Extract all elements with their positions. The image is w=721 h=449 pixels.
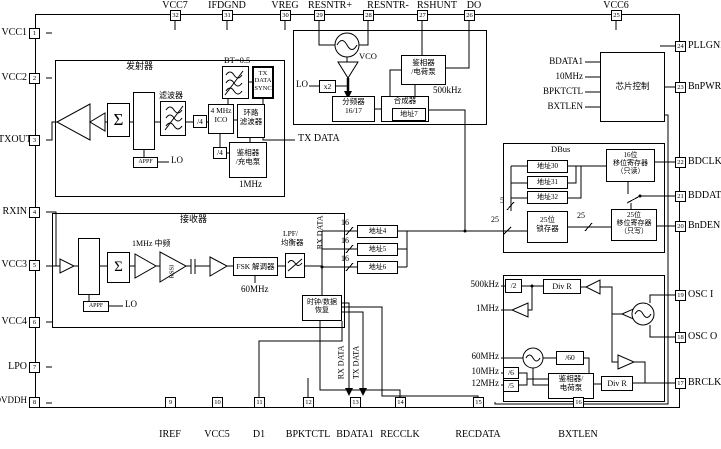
- pin-vcc6[interactable]: 25: [611, 10, 622, 21]
- pin-num: 31: [224, 12, 231, 19]
- pin-vcc5[interactable]: 10: [212, 397, 223, 408]
- pin-num: 18: [677, 334, 684, 341]
- pin-resntr-m[interactable]: 28: [363, 10, 374, 21]
- pin-osco[interactable]: 18: [675, 332, 686, 343]
- pin-num: 20: [677, 223, 684, 230]
- pin-do[interactable]: 26: [464, 10, 475, 21]
- pin-vcc4-label: VCC4: [1, 316, 27, 327]
- pin-num: 26: [466, 12, 473, 19]
- pin-num: 29: [316, 12, 323, 19]
- pin-num: 9: [169, 399, 172, 406]
- pin-vcc7[interactable]: 32: [170, 10, 181, 21]
- pin-num: 27: [419, 12, 426, 19]
- tx-data-sync-block: TXDATASYNC: [252, 66, 274, 99]
- lpf-label2: 均衡器: [281, 239, 304, 247]
- addr5-block: 地址5: [357, 243, 398, 256]
- tx-data-label: TX DATA: [298, 133, 340, 144]
- chip-control-block: 芯片控制: [600, 52, 665, 122]
- div5-block: /5: [503, 380, 519, 392]
- transmitter-title: 发射器: [126, 62, 153, 72]
- pin-bnden-label: BnDEN: [688, 220, 720, 231]
- pin-d1-label: D1: [253, 429, 265, 440]
- pin-num: 19: [677, 292, 684, 299]
- tx-div4b-block: /4: [213, 147, 227, 159]
- pin-vcc2[interactable]: 2: [29, 73, 40, 84]
- pin-recclk[interactable]: 14: [395, 397, 406, 408]
- pin-vcc5-label: VCC5: [204, 429, 230, 440]
- pin-pllgnd-label: PLLGND: [688, 40, 721, 51]
- dbus-title: DBus: [551, 145, 570, 154]
- tx-mixer-block: [133, 92, 155, 150]
- divr2-block: Div R: [601, 376, 633, 391]
- bus16-label-1: 16: [341, 219, 349, 228]
- addr30-block: 地址30: [527, 160, 568, 173]
- pin-num: 12: [305, 399, 312, 406]
- tx-loop-filter-block: 环路滤波器: [237, 104, 265, 138]
- pin-rxin-label: RXIN: [1, 206, 27, 217]
- pin-num: 3: [33, 137, 36, 144]
- pin-bxtlen-label: BXTLEN: [558, 429, 597, 440]
- pin-brclk-label: BRCLK: [688, 377, 721, 388]
- pin-num: 17: [677, 380, 684, 387]
- pin-num: 6: [33, 319, 36, 326]
- pin-bdata1[interactable]: 13: [350, 397, 361, 408]
- pin-bnden[interactable]: 20: [675, 221, 686, 232]
- pin-bxtlen[interactable]: 16: [573, 397, 584, 408]
- syn-500khz-label: 500kHz: [433, 86, 462, 96]
- pin-num: 21: [677, 193, 684, 200]
- cdr-line2: 恢复: [303, 306, 341, 314]
- addr7-block: 地址7: [392, 108, 426, 121]
- mid-rxdata-label: RX DATA: [338, 341, 347, 383]
- pin-lpo[interactable]: 7: [29, 362, 40, 373]
- syn-phase-detector-block: 鉴相器/电荷泵: [401, 55, 446, 85]
- sr16-line2: 移位寄存器: [607, 159, 654, 167]
- addr32-block: 地址32: [527, 191, 568, 204]
- pin-d1[interactable]: 11: [254, 397, 265, 408]
- pin-lpo-label: LPO: [1, 361, 27, 372]
- bt-label: BT=0.5: [224, 56, 250, 65]
- loop-line2: 滤波器: [238, 118, 264, 127]
- pin-num: 7: [33, 364, 36, 371]
- sync-line1: TX: [254, 70, 272, 77]
- pin-bpktctl-label: BPKTCTL: [286, 429, 330, 440]
- tx-ico-block: 4 MHzICO: [208, 104, 234, 134]
- pin-brclk[interactable]: 17: [675, 378, 686, 389]
- tx-sigma-block: Σ: [107, 103, 130, 137]
- pin-txout[interactable]: 3: [29, 135, 40, 146]
- clk-12mhz-label: 12MHz: [463, 379, 499, 389]
- pin-recdata-label: RECDATA: [455, 429, 500, 440]
- clk-1mhz-label: 1MHz: [465, 304, 499, 314]
- pin-num: 23: [677, 84, 684, 91]
- pin-num: 24: [677, 43, 684, 50]
- pin-bdclk-label: BDCLK: [688, 156, 721, 167]
- rx-if-label: 1MHz 中频: [132, 240, 170, 249]
- pin-vcc1[interactable]: 1: [29, 28, 40, 39]
- sr25-line3: （只写）: [612, 227, 656, 235]
- cc-bpktctl-label: BPKTCTL: [535, 87, 583, 97]
- clk-phase-detector-block: 鉴相器/电荷泵: [548, 373, 594, 399]
- bus16-label-3: 16: [341, 255, 349, 264]
- fsk-demod-block: FSK 解调器: [233, 257, 278, 276]
- pin-num: 8: [33, 399, 36, 406]
- pin-osci-label: OSC I: [688, 289, 713, 300]
- pin-bnpwr-label: BnPWR: [688, 81, 721, 92]
- pin-num: 28: [365, 12, 372, 19]
- rx-60mhz-label: 60MHz: [241, 285, 269, 295]
- vco-label: VCO: [359, 52, 377, 61]
- tx-filter-block: [160, 101, 186, 136]
- sr16-line3: （只读）: [607, 167, 654, 175]
- pin-num: 30: [282, 12, 289, 19]
- clk-500khz-label: 500kHz: [455, 280, 499, 290]
- rssi-label: RSSI: [168, 252, 175, 292]
- pin-num: 25: [613, 12, 620, 19]
- pin-iref-label: IREF: [159, 429, 181, 440]
- pd-line2: /充电泵: [230, 158, 266, 167]
- rx-sigma-block: Σ: [107, 252, 130, 283]
- bus25-label: 25: [491, 216, 499, 225]
- pd-line2: 电荷泵: [549, 384, 593, 393]
- pin-rxin[interactable]: 4: [29, 207, 40, 218]
- sr16-line1: 16位: [607, 151, 654, 159]
- pin-txout-label: TXOUT: [0, 134, 27, 145]
- tx-filter-label: 滤波器: [159, 92, 183, 101]
- receiver-title: 接收器: [180, 215, 207, 225]
- cc-bdata1-label: BDATA1: [535, 57, 583, 67]
- pin-num: 5: [33, 262, 36, 269]
- pin-num: 13: [352, 399, 359, 406]
- pin-osco-label: OSC O: [688, 331, 717, 342]
- pin-bddata[interactable]: 21: [675, 191, 686, 202]
- pin-osci[interactable]: 19: [675, 290, 686, 301]
- pin-recdata[interactable]: 15: [473, 397, 484, 408]
- rx-mixer-block: [78, 238, 100, 295]
- syn-lo-label: LO: [296, 80, 308, 90]
- sync-line2: DATA: [254, 77, 272, 84]
- pin-rshunt[interactable]: 27: [417, 10, 428, 21]
- div6-block: /6: [503, 367, 519, 379]
- pin-bdclk[interactable]: 22: [675, 157, 686, 168]
- txdata-arrow-icon: [359, 388, 367, 396]
- gaussian-filter-block: [222, 66, 249, 99]
- rx-lo-label: LO: [125, 300, 137, 310]
- pin-recclk-label: RECCLK: [380, 429, 419, 440]
- pin-bnpwr[interactable]: 23: [675, 82, 686, 93]
- tx-1mhz-label: 1MHz: [239, 180, 262, 190]
- lpf-label1: LPF/: [283, 230, 298, 238]
- pin-bddata-label: BDDATA: [688, 190, 721, 201]
- rx-data-label: RX DATA: [317, 211, 326, 253]
- pin-num: 10: [214, 399, 221, 406]
- synth-label: 合成器: [382, 97, 428, 106]
- addr4-block: 地址4: [357, 225, 398, 238]
- pin-vcc1-label: VCC1: [1, 27, 27, 38]
- pin-vcc3-label: VCC3: [1, 259, 27, 270]
- cc-bxtlen-label: BXTLEN: [535, 102, 583, 112]
- clock-data-recovery-block: 时钟/数据恢复: [302, 295, 342, 321]
- cc-10mhz-label: 10MHz: [535, 72, 583, 82]
- pin-dvddh-label: DVDDH: [0, 396, 27, 406]
- div60-block: /60: [556, 351, 584, 365]
- div2-block: /2: [505, 279, 522, 293]
- divider-line2: 16/17: [333, 107, 374, 116]
- latch-line2: 锁存器: [528, 225, 567, 234]
- pin-vcc4[interactable]: 6: [29, 317, 40, 328]
- pin-num: 14: [397, 399, 404, 406]
- shift-reg-16-block: 16位移位寄存器（只读）: [606, 149, 655, 182]
- pin-num: 15: [475, 399, 482, 406]
- addr6-block: 地址6: [357, 261, 398, 274]
- block-diagram: 32 VCC7 31 IFDGND 30 VREG 29 RESNTR+ 28 …: [0, 0, 721, 449]
- pin-num: 16: [575, 399, 582, 406]
- pin-num: 22: [677, 159, 684, 166]
- divider-16-17-block: 分频器16/17: [332, 96, 375, 122]
- pin-num: 1: [33, 30, 36, 37]
- pin-num: 2: [33, 75, 36, 82]
- bus5-label: 5: [500, 197, 504, 206]
- addr31-block: 地址31: [527, 176, 568, 189]
- pin-num: 32: [172, 12, 179, 19]
- pin-bpktctl[interactable]: 12: [303, 397, 314, 408]
- rxdata-arrow-icon: [345, 388, 353, 396]
- pin-dvddh[interactable]: 8: [29, 397, 40, 408]
- pin-pllgnd[interactable]: 24: [675, 41, 686, 52]
- pin-num: 11: [256, 399, 262, 406]
- sync-line3: SYNC: [254, 85, 272, 92]
- divr1-block: Div R: [543, 279, 581, 294]
- pin-resntr-p[interactable]: 29: [314, 10, 325, 21]
- lpf-block: [285, 253, 305, 278]
- tx-phase-detector-block: 鉴相器/充电泵: [229, 142, 267, 178]
- pin-num: 4: [33, 209, 36, 216]
- mid-txdata-label: TX DATA: [353, 341, 362, 383]
- pin-vreg[interactable]: 30: [280, 10, 291, 21]
- latch25-block: 25位锁存器: [527, 211, 568, 243]
- pd-line2: /电荷泵: [402, 68, 445, 77]
- pin-bdata1-label: BDATA1: [336, 429, 374, 440]
- tx-appf-block: APPF: [133, 157, 158, 168]
- rx-appf-block: APPF: [83, 301, 109, 312]
- sr25-line1: 25位: [612, 211, 656, 219]
- x2-block: x2: [319, 80, 336, 93]
- sr25-line2: 移位寄存器: [612, 219, 656, 227]
- shift-reg-25-block: 25位移位寄存器（只写）: [611, 209, 657, 241]
- pin-ifdgnd[interactable]: 31: [222, 10, 233, 21]
- clk-10mhz-label: 10MHz: [463, 367, 499, 377]
- pin-vcc2-label: VCC2: [1, 72, 27, 83]
- clk-60mhz-label: 60MHz: [463, 352, 499, 362]
- bus25b-label: 25: [577, 212, 585, 221]
- pin-iref[interactable]: 9: [165, 397, 176, 408]
- tx-lo-label: LO: [171, 156, 183, 166]
- ico-line2: ICO: [209, 116, 233, 125]
- tx-div4-block: /4: [193, 115, 207, 128]
- cdr-line1: 时钟/数据: [303, 298, 341, 306]
- pin-vcc3[interactable]: 5: [29, 260, 40, 271]
- bus16-label-2: 16: [341, 237, 349, 246]
